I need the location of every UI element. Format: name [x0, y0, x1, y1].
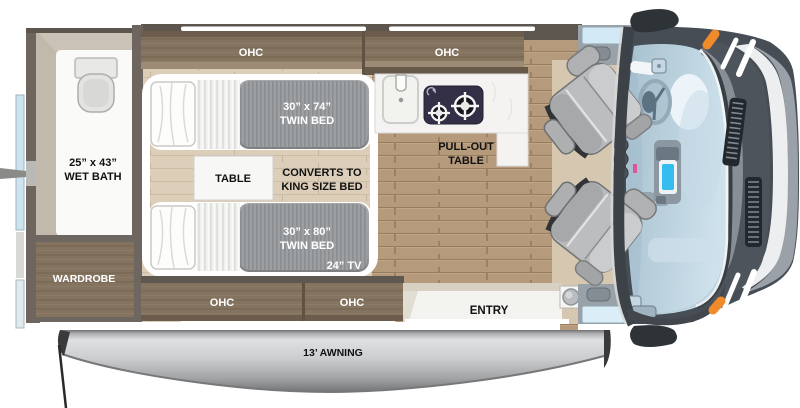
svg-text:WARDROBE: WARDROBE	[53, 273, 115, 285]
svg-text:CONVERTS TO: CONVERTS TO	[282, 167, 362, 179]
svg-text:30” x 80”: 30” x 80”	[283, 226, 331, 238]
svg-text:ENTRY: ENTRY	[470, 305, 509, 317]
svg-text:WET BATH: WET BATH	[64, 171, 121, 183]
svg-text:TWIN BED: TWIN BED	[280, 115, 334, 127]
svg-text:30” x 74”: 30” x 74”	[283, 101, 331, 113]
svg-text:OHC: OHC	[435, 47, 460, 59]
svg-text:24” TV: 24” TV	[327, 260, 363, 272]
svg-text:TABLE: TABLE	[448, 155, 484, 167]
svg-text:25” x 43”: 25” x 43”	[69, 157, 117, 169]
svg-text:OHC: OHC	[239, 47, 264, 59]
svg-text:OHC: OHC	[340, 297, 365, 309]
svg-text:OHC: OHC	[210, 297, 235, 309]
svg-text:PULL-OUT: PULL-OUT	[438, 141, 494, 153]
svg-text:TABLE: TABLE	[215, 173, 251, 185]
svg-text:KING SIZE BED: KING SIZE BED	[281, 181, 362, 193]
svg-text:TWIN BED: TWIN BED	[280, 240, 334, 252]
svg-text:13’ AWNING: 13’ AWNING	[303, 347, 363, 359]
